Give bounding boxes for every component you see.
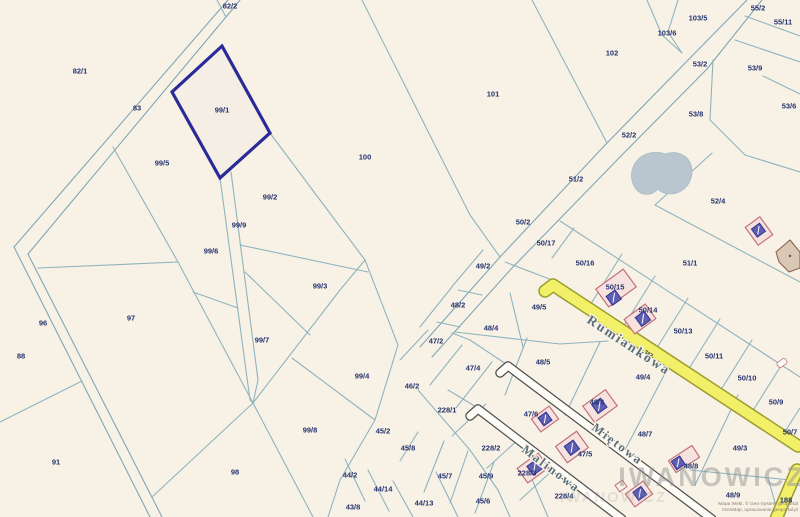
parcel-label-97: 97 [127,314,135,323]
parcel-label-83: 83 [133,104,141,113]
parcel-label-50-2: 50/2 [516,218,531,227]
credit-line-2: iGeoMap, opracowanie geoportal.pl [722,507,798,513]
parcel-label-55-11: 55/11 [774,18,792,27]
parcel-label-99-7: 99/7 [255,336,270,345]
parcel-label-50-9: 50/9 [769,398,784,407]
parcel-label-53-9: 53/9 [748,64,763,73]
parcel-label-49-5: 49/5 [532,303,547,312]
parcel-label-48-4: 48/4 [484,324,499,333]
credit-line-1: Mapa Wekt. © Geo-System geoportal [718,500,798,507]
parcel-label-99-6: 99/6 [204,247,219,256]
parcel-label-99-9: 99/9 [232,221,247,230]
parcel-label-228-1: 228/1 [438,406,457,415]
parcel-label-99-8: 99/8 [303,426,318,435]
parcel-label-49-2: 49/2 [476,262,491,271]
parcel-label-48-6: 48/6 [590,398,605,407]
parcel-label-48-7: 48/7 [638,430,653,439]
parcel-label-91: 91 [52,458,60,467]
parcel-label-55-2: 55/2 [751,4,766,13]
parcel-label-53-8: 53/8 [689,110,704,119]
parcel-label-50-13: 50/13 [674,327,693,336]
parcel-label-48-5: 48/5 [536,358,551,367]
parcel-label-100: 100 [359,153,372,162]
pond [632,152,692,194]
parcel-label-47-4: 47/4 [466,364,481,373]
parcel-label-53-2: 53/2 [693,60,708,69]
cadastral-map[interactable]: 82/282/18399/199/5100101102103/5103/655/… [0,0,800,517]
parcel-label-96: 96 [39,319,47,328]
parcel-label-44-2: 44/2 [343,471,358,480]
map-credits: Mapa Wekt. © Geo-System geoportal iGeoMa… [718,500,798,513]
parcel-label-103-5: 103/5 [689,14,708,23]
parcel-label-98: 98 [231,468,239,477]
parcel-label-99-2: 99/2 [263,193,278,202]
parcel-label-50-10: 50/10 [738,374,757,383]
parcel-label-50-11: 50/11 [705,352,723,361]
map-background [0,0,800,517]
parcel-label-228-3: 228/3 [518,469,537,478]
parcel-label-45-7: 45/7 [438,472,453,481]
parcel-label-47-6: 47/6 [524,410,539,419]
parcel-label-44-14: 44/14 [374,485,394,494]
parcel-label-103-6: 103/6 [658,29,677,38]
parcel-label-99-4: 99/4 [355,372,370,381]
parcel-label-82-1: 82/1 [73,67,88,76]
parcel-label-48-2: 48/2 [451,301,466,310]
watermark-primary: IWANOWICZ [618,462,800,492]
parcel-label-88: 88 [17,352,25,361]
parcel-label-52-4: 52/4 [711,197,726,206]
parcel-label-52-2: 52/2 [622,131,637,140]
parcel-label-45-6: 45/6 [476,497,491,506]
parcel-label-45-9: 45/9 [479,472,494,481]
parcel-label-50-7: 50/7 [783,428,798,437]
parcel-label-101: 101 [487,90,500,99]
parcel-label-50-15: 50/15 [606,283,625,292]
parcel-label-53-6: 53/6 [782,102,797,111]
parcel-label-50-16: 50/16 [576,259,595,268]
parcel-label-99-1: 99/1 [215,106,230,115]
parcel-label-50-17: 50/17 [537,239,556,248]
parcel-label-45-2: 45/2 [376,427,391,436]
parcel-label-44-13: 44/13 [415,499,434,508]
parcel-label-45-8: 45/8 [401,444,416,453]
parcel-label-102: 102 [606,49,619,58]
parcel-label-47-5: 47/5 [578,450,593,459]
parcel-label-99-3: 99/3 [313,282,328,291]
parcel-label-99-5: 99/5 [155,159,170,168]
parcel-label-51-1: 51/1 [683,259,698,268]
parcel-label-228-2: 228/2 [482,444,501,453]
parcel-label-49-3: 49/3 [733,444,748,453]
map-canvas[interactable]: 82/282/18399/199/5100101102103/5103/655/… [0,0,800,517]
parcel-label-46-2: 46/2 [405,382,420,391]
parcel-label-51-2: 51/2 [569,175,584,184]
parcel-label-49-4: 49/4 [636,373,651,382]
parcel-label-43-8: 43/8 [346,503,361,512]
parcel-label-82-2: 82/2 [223,2,238,11]
parcel-label-50-14: 50/14 [639,306,659,315]
parcel-label-47-2: 47/2 [429,337,444,346]
